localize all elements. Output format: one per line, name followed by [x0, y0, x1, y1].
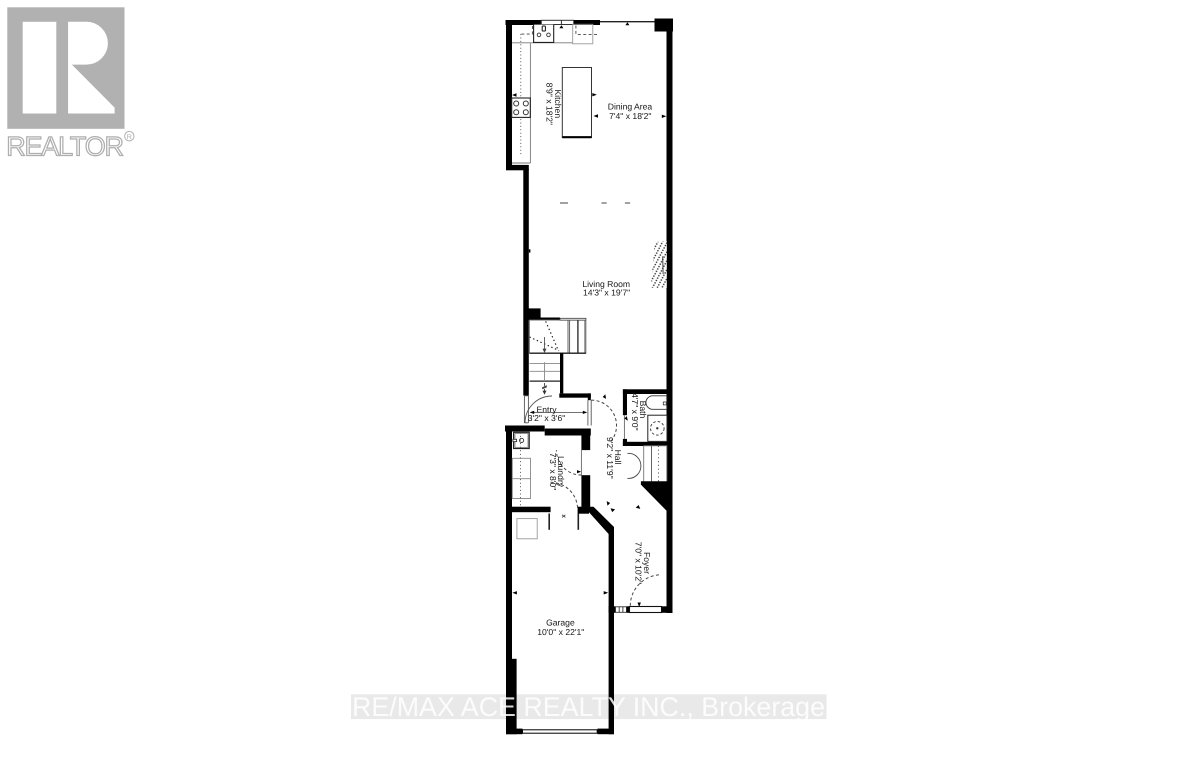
svg-text:9'2" x 11'9": 9'2" x 11'9" — [605, 437, 615, 479]
svg-text:10'0" x 22'1": 10'0" x 22'1" — [537, 627, 584, 637]
svg-text:3'2" x 3'6": 3'2" x 3'6" — [528, 413, 566, 423]
svg-text:8'9" x 18'2": 8'9" x 18'2" — [545, 83, 555, 125]
svg-text:R: R — [127, 134, 132, 141]
svg-text:14'3" x 19'7": 14'3" x 19'7" — [583, 288, 630, 298]
svg-text:RE/MAX ACE REALTY INC., Broker: RE/MAX ACE REALTY INC., Brokerage — [352, 692, 825, 722]
svg-text:7'0" x 10'2": 7'0" x 10'2" — [634, 542, 644, 584]
svg-text:REALTOR: REALTOR — [6, 131, 123, 161]
svg-text:Garage: Garage — [546, 617, 575, 627]
svg-text:7'3" x 8'0": 7'3" x 8'0" — [548, 453, 558, 491]
svg-text:Dining Area: Dining Area — [608, 102, 653, 112]
svg-text:4'7" x 9'0": 4'7" x 9'0" — [630, 393, 640, 431]
svg-text:7'4" x 18'2": 7'4" x 18'2" — [609, 111, 651, 121]
